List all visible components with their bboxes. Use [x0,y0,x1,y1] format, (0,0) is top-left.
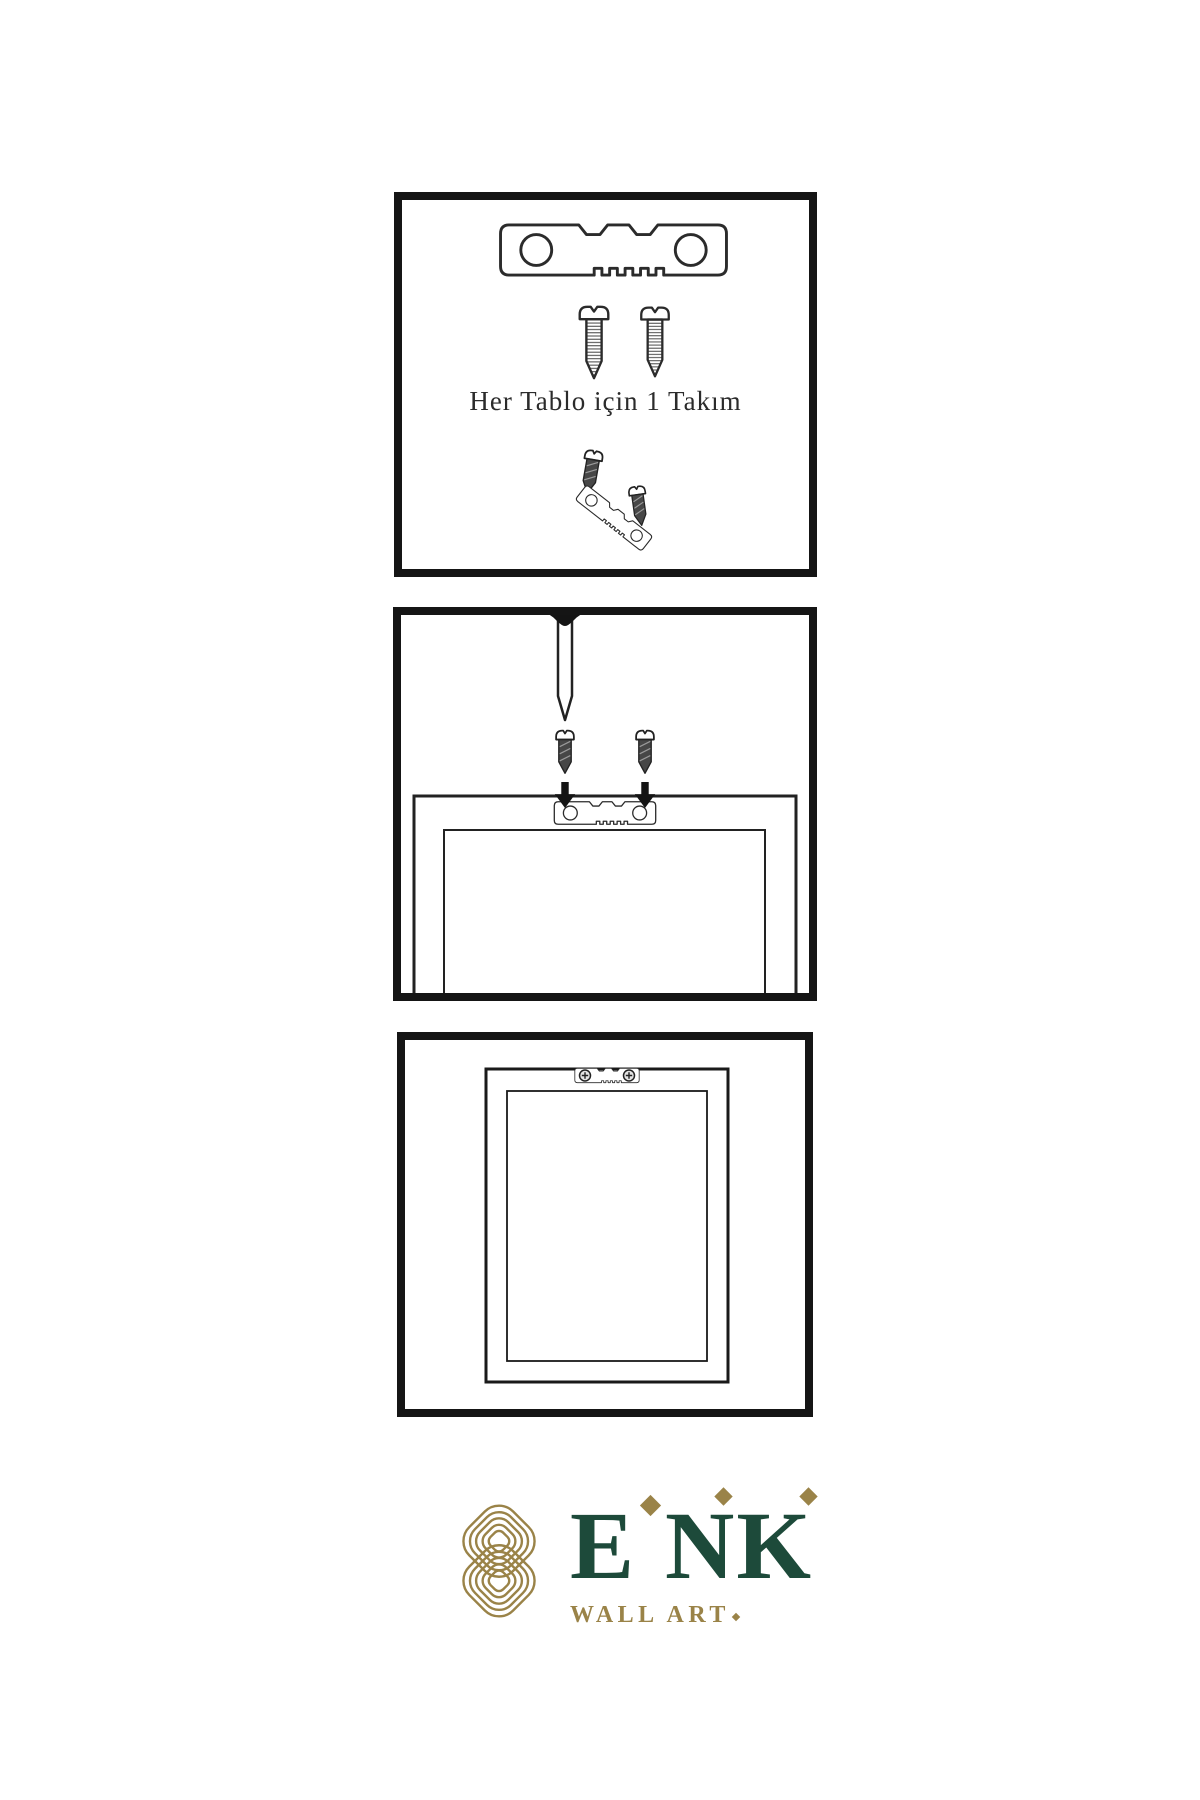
panel-finished-frame [397,1032,813,1417]
panel-mounting-step [393,607,817,1001]
nail-icon [542,615,588,720]
brand-logo: E N K WALL ART [443,1494,813,1627]
screw-icon [628,486,650,527]
frame-back-inner [507,1091,707,1361]
hardware-kit-illustration [402,200,809,569]
logo-text: E N K WALL ART [570,1498,813,1627]
logo-subtitle: WALL ART [570,1602,730,1628]
brand-name: E N K [570,1498,813,1594]
panel-hardware-kit: Her Tablo için 1 Takım [394,192,817,577]
knot-loop-top [455,1497,543,1585]
brand-letter-text: N [665,1492,736,1599]
brand-letter-text: K [736,1492,813,1599]
phillips-screw-head-icon [624,1070,635,1081]
brand-letter: E [570,1498,636,1594]
screw-icon [556,731,574,774]
brand-letter-text: E [570,1492,636,1599]
screw-icon [580,307,609,378]
screw-icon [636,731,654,774]
mounting-step-illustration [401,615,809,993]
phillips-screw-head-icon [580,1070,591,1081]
frame-back-inner [444,830,765,993]
logo-subtitle-row: WALL ART [570,1603,813,1627]
sawtooth-hanger-icon [501,225,727,275]
knot-loop-bottom [455,1536,543,1624]
sawtooth-hanger-icon [554,802,655,825]
screw-icon [641,308,669,377]
diamond-accent-icon [640,1495,661,1516]
brand-letter: N [665,1498,736,1594]
screw-hanger-assembly [575,449,653,551]
diamond-accent-icon [732,1613,740,1621]
kit-caption: Her Tablo için 1 Takım [402,386,809,417]
interlocking-knot-icon [443,1495,555,1627]
brand-letter: K [736,1498,813,1594]
finished-frame-illustration [405,1040,805,1409]
